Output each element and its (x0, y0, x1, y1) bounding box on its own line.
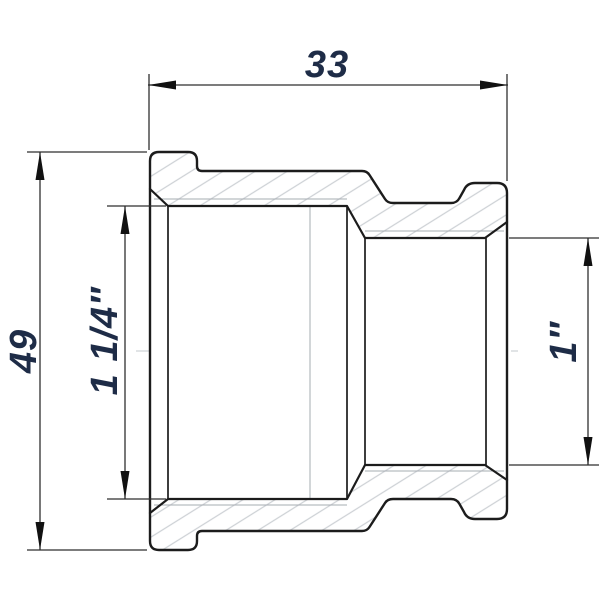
technical-drawing: 33 49 1 1/4″ 1″ (0, 0, 600, 600)
dim-label-left-bore: 1 1/4″ (84, 286, 126, 396)
dim-label-width: 33 (305, 44, 349, 86)
drawing-canvas: 33 49 1 1/4″ 1″ (0, 0, 600, 600)
dim-label-right-bore: 1″ (543, 321, 585, 363)
dim-label-height: 49 (3, 329, 45, 374)
